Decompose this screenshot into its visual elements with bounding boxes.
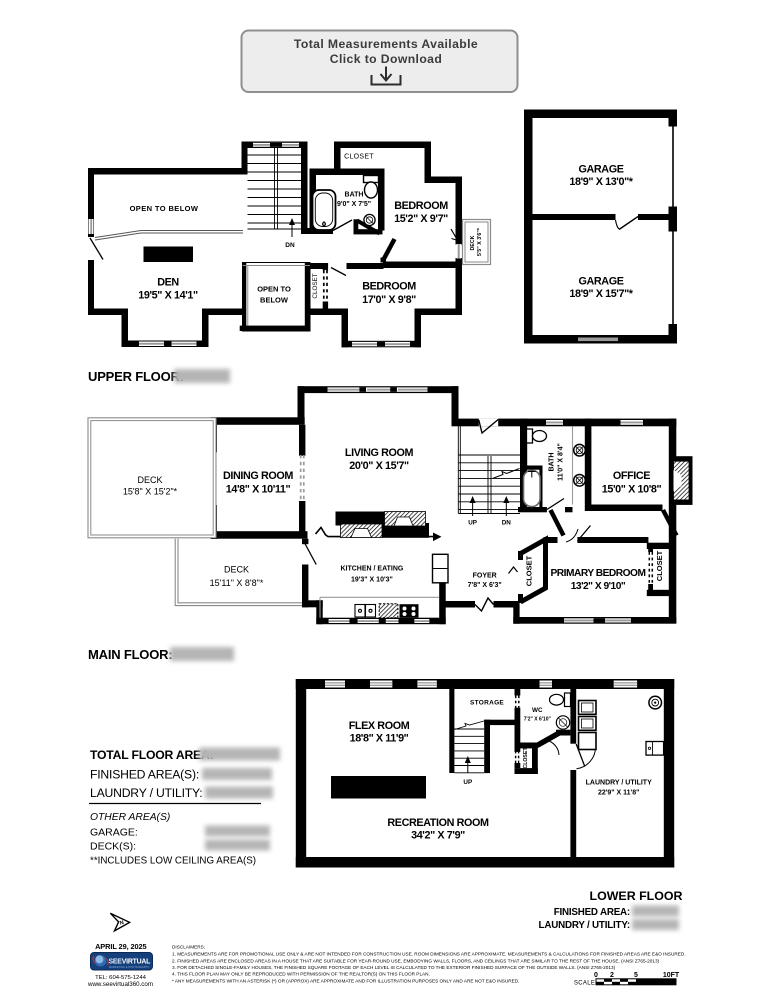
svg-text:WC: WC bbox=[532, 707, 543, 714]
svg-text:OFFICE: OFFICE bbox=[613, 470, 650, 482]
svg-text:DECK: DECK bbox=[137, 475, 162, 485]
svg-text:DEN: DEN bbox=[157, 277, 179, 289]
svg-text:OPEN TO: OPEN TO bbox=[257, 285, 291, 294]
svg-text:BATH: BATH bbox=[549, 453, 556, 472]
svg-text:CLOSET: CLOSET bbox=[312, 273, 319, 298]
svg-text:MAIN FLOOR:: MAIN FLOOR: bbox=[88, 647, 172, 662]
svg-text:5: 5 bbox=[634, 972, 638, 979]
svg-text:DN: DN bbox=[285, 242, 295, 249]
svg-text:BEDROOM: BEDROOM bbox=[362, 281, 416, 293]
svg-text:LAUNDRY / UTILITY:: LAUNDRY / UTILITY: bbox=[90, 786, 202, 800]
svg-text:DINING ROOM: DINING ROOM bbox=[223, 470, 293, 482]
svg-text:OTHER AREA(S): OTHER AREA(S) bbox=[90, 812, 170, 823]
svg-text:PRIMARY BEDROOM: PRIMARY BEDROOM bbox=[551, 568, 646, 579]
svg-text:MARKETING & PHOTOGRAPHY: MARKETING & PHOTOGRAPHY bbox=[109, 966, 149, 969]
svg-text:4. THIS FLOOR PLAN MAY ONLY BE: 4. THIS FLOOR PLAN MAY ONLY BE REPRODUCE… bbox=[172, 972, 430, 977]
svg-text:9'0" X 7'5": 9'0" X 7'5" bbox=[337, 201, 371, 208]
svg-text:APRIL 29, 2025: APRIL 29, 2025 bbox=[95, 942, 146, 951]
svg-text:UP: UP bbox=[463, 779, 472, 786]
svg-text:TOTAL FLOOR AREA:: TOTAL FLOOR AREA: bbox=[90, 748, 213, 762]
svg-text:2. FINISHED AREAS ARE ENCLOSED: 2. FINISHED AREAS ARE ENCLOSED AREAS IN … bbox=[172, 958, 660, 963]
svg-text:UP: UP bbox=[468, 520, 477, 527]
svg-text:Total Measurements Available: Total Measurements Available bbox=[294, 37, 478, 51]
svg-text:LOWER FLOOR: LOWER FLOOR bbox=[590, 889, 683, 903]
svg-text:2: 2 bbox=[610, 972, 614, 979]
svg-text:SEEVIRTUAL: SEEVIRTUAL bbox=[109, 959, 151, 966]
svg-text:www.seevirtual360.com: www.seevirtual360.com bbox=[87, 981, 153, 988]
svg-text:34'2" X 7'9": 34'2" X 7'9" bbox=[411, 830, 465, 842]
svg-text:7'8" X 6'3": 7'8" X 6'3" bbox=[468, 582, 502, 589]
svg-text:Click to Download: Click to Download bbox=[330, 52, 442, 66]
svg-text:19'3" X 10'3": 19'3" X 10'3" bbox=[351, 577, 393, 584]
svg-text:3. FOR DETACHED SINGLE-FAMILY: 3. FOR DETACHED SINGLE-FAMILY HOUSES, TH… bbox=[172, 965, 616, 970]
svg-text:20'0" X 15'7": 20'0" X 15'7" bbox=[349, 460, 409, 472]
svg-text:CLOSET: CLOSET bbox=[525, 555, 534, 586]
svg-text:GARAGE: GARAGE bbox=[579, 164, 624, 176]
svg-text:19'5" X 14'1": 19'5" X 14'1" bbox=[138, 290, 198, 302]
svg-text:18'9" X 15'7"*: 18'9" X 15'7"* bbox=[569, 288, 633, 300]
svg-text:17'0" X 9'8": 17'0" X 9'8" bbox=[362, 294, 416, 306]
svg-text:DISCLAIMERS:: DISCLAIMERS: bbox=[172, 945, 205, 950]
svg-text:DECK: DECK bbox=[470, 235, 476, 250]
svg-text:7'2" X 6'10": 7'2" X 6'10" bbox=[524, 717, 552, 723]
svg-text:BELOW: BELOW bbox=[260, 296, 289, 305]
svg-text:KITCHEN / EATING: KITCHEN / EATING bbox=[340, 566, 403, 573]
svg-text:GARAGE:: GARAGE: bbox=[90, 827, 138, 839]
svg-text:LIVING ROOM: LIVING ROOM bbox=[345, 447, 414, 459]
svg-text:11'0" X 8'4": 11'0" X 8'4" bbox=[558, 443, 565, 481]
svg-text:CLOSET: CLOSET bbox=[655, 550, 664, 581]
svg-text:15'0" X 10'8": 15'0" X 10'8" bbox=[602, 484, 662, 496]
svg-text:15'8" X 15'2"*: 15'8" X 15'2"* bbox=[123, 487, 178, 497]
svg-text:UPPER FLOOR:: UPPER FLOOR: bbox=[88, 369, 184, 384]
svg-text:OPEN TO BELOW: OPEN TO BELOW bbox=[130, 204, 199, 213]
svg-text:SCALE: SCALE bbox=[574, 980, 595, 986]
svg-text:15'2" X 9'7": 15'2" X 9'7" bbox=[394, 213, 448, 225]
svg-text:14'8" X 10'11": 14'8" X 10'11" bbox=[226, 484, 291, 496]
svg-text:15'11" X 8'8"*: 15'11" X 8'8"* bbox=[210, 578, 264, 588]
svg-text:DN: DN bbox=[502, 520, 512, 527]
svg-text:5'5" X 3'6"*: 5'5" X 3'6"* bbox=[477, 227, 483, 256]
svg-text:CLOSET: CLOSET bbox=[523, 747, 529, 769]
svg-text:STORAGE: STORAGE bbox=[470, 700, 504, 707]
svg-text:1. MEASUREMENTS ARE FOR PROMOT: 1. MEASUREMENTS ARE FOR PROMOTIONAL USE … bbox=[172, 952, 686, 957]
svg-text:GARAGE: GARAGE bbox=[579, 276, 624, 288]
svg-text:DECK(S):: DECK(S): bbox=[90, 841, 136, 853]
svg-text:* ANY MEASUREMENTS WITH AN AST: * ANY MEASUREMENTS WITH AN ASTERISK (*) … bbox=[172, 978, 519, 983]
svg-text:**INCLUDES LOW CEILING AREA(S): **INCLUDES LOW CEILING AREA(S) bbox=[90, 856, 256, 867]
svg-text:BEDROOM: BEDROOM bbox=[394, 200, 448, 212]
svg-text:LAUNDRY / UTILITY: LAUNDRY / UTILITY bbox=[586, 780, 652, 787]
svg-text:LAUNDRY / UTILITY:: LAUNDRY / UTILITY: bbox=[539, 920, 630, 931]
svg-text:FINISHED AREA(S):: FINISHED AREA(S): bbox=[90, 768, 199, 782]
svg-text:0: 0 bbox=[594, 972, 598, 979]
svg-text:BATH: BATH bbox=[345, 192, 364, 199]
svg-text:FOYER: FOYER bbox=[473, 572, 497, 579]
svg-text:13'2" X 9'10": 13'2" X 9'10" bbox=[571, 581, 626, 592]
svg-text:18'9" X 13'0"*: 18'9" X 13'0"* bbox=[569, 176, 633, 188]
svg-text:22'9" X 11'8": 22'9" X 11'8" bbox=[598, 790, 640, 797]
svg-text:FINISHED AREA:: FINISHED AREA: bbox=[554, 907, 630, 918]
svg-text:RECREATION ROOM: RECREATION ROOM bbox=[387, 817, 489, 829]
svg-text:DECK: DECK bbox=[224, 565, 249, 575]
svg-text:CLOSET: CLOSET bbox=[344, 154, 374, 161]
svg-text:18'8" X 11'9": 18'8" X 11'9" bbox=[350, 733, 409, 745]
svg-text:10FT: 10FT bbox=[663, 972, 680, 979]
svg-text:FLEX ROOM: FLEX ROOM bbox=[349, 720, 410, 732]
